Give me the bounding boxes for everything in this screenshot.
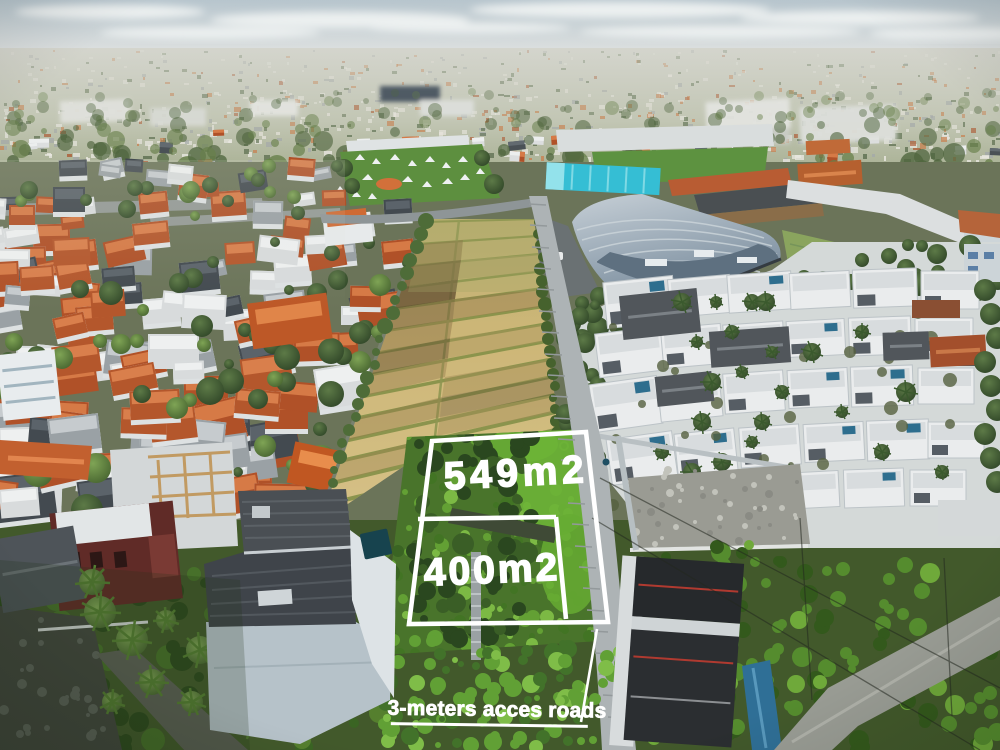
svg-text:3-meters acces roads: 3-meters acces roads [387,697,606,723]
svg-text:400m2: 400m2 [423,546,561,595]
svg-text:549m2: 549m2 [443,448,589,499]
